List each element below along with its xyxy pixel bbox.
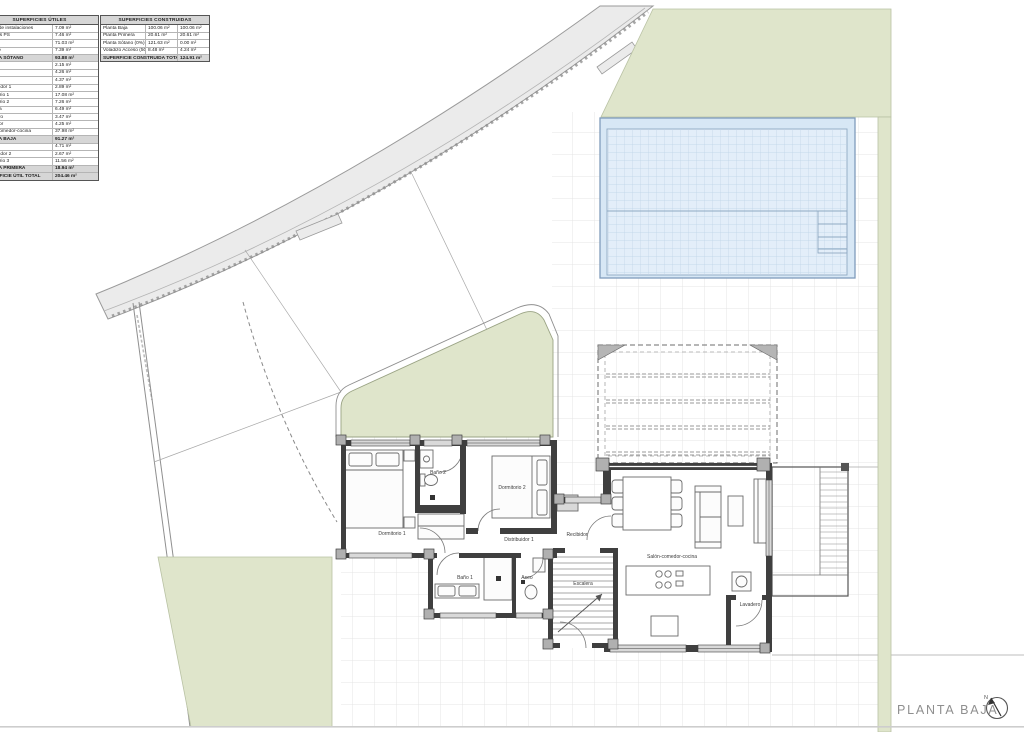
kitchen-island [626, 566, 710, 595]
table-row: Baño 3 4.71 m² [0, 143, 98, 150]
row-value: 6.49 m² [52, 107, 98, 113]
table-header: SUPERFICIES ÚTILES [0, 16, 98, 25]
table-row: SUPERFICIE ÚTIL TOTAL 204.46 m² [0, 172, 98, 179]
row-label: PLANTA BAJA [0, 136, 52, 142]
garden-east-strip [878, 117, 891, 732]
row-label: Escalera [0, 107, 52, 113]
row-value: 7.26 m² [52, 99, 98, 105]
table-row: Trastero 7.39 m² [0, 47, 98, 54]
row-value-built: 8.48 m² [145, 48, 177, 54]
row-label: Distribuidor 1 [0, 85, 52, 91]
wardrobe [418, 514, 464, 539]
row-value: 4.26 m² [52, 70, 98, 76]
table-row: Lavadero 3.47 m² [0, 113, 98, 120]
plan-title: PLANTA BAJA [897, 703, 999, 717]
room-label-aseo: Aseo [521, 575, 533, 581]
row-value: 2.15 m² [52, 62, 98, 68]
table-row: Dormitorio 3 11.56 m² [0, 157, 98, 164]
table-total-row: SUPERFICIE CONSTRUIDA TOTAL 124.91 m² [101, 54, 209, 61]
row-label: Trastero [0, 48, 52, 54]
row-label: Aseo [0, 62, 52, 68]
row-label: Planta Primera [101, 33, 145, 39]
garden-north-east [601, 9, 891, 117]
row-value: 4.25 m² [52, 121, 98, 127]
table-header: SUPERFICIES CONSTRUIDAS [101, 16, 209, 25]
row-label: Baño 3 [0, 144, 52, 150]
washing-machine [732, 572, 751, 591]
table-row: Bodega 71.03 m² [0, 39, 98, 46]
table-row: Escalera 6.49 m² [0, 106, 98, 113]
table-row: Dormitorio 1 17.08 m² [0, 91, 98, 98]
row-value: 3.47 m² [52, 114, 98, 120]
table-row: Cuarto de instalaciones 7.09 m² [0, 25, 98, 31]
row-value: 17.08 m² [52, 92, 98, 98]
tv-sideboard [754, 479, 767, 543]
table-rows: Planta Baja 100.06 m² 100.06 m² Planta P… [101, 25, 209, 54]
row-label: Bodega [0, 40, 52, 46]
row-value: 93.88 m² [52, 55, 98, 61]
garden-south-west [158, 557, 332, 727]
row-value: 2.89 m² [52, 85, 98, 91]
table-row: Recibidor 4.25 m² [0, 120, 98, 127]
row-value-built: 20.61 m² [145, 33, 177, 39]
row-value: 2.67 m² [52, 151, 98, 157]
dining-table [612, 477, 682, 530]
table-row: Baño 1 4.26 m² [0, 69, 98, 76]
row-value-computed: 4.24 m² [177, 48, 209, 54]
table-row: PLANTA SÓTANO 93.88 m² [0, 54, 98, 61]
row-value-built: 121.63 m² [145, 40, 177, 46]
row-label: Baño 1 [0, 70, 52, 76]
total-value: 124.91 m² [177, 55, 209, 61]
table-superficies-construidas: SUPERFICIES CONSTRUIDAS Planta Baja 100.… [100, 15, 210, 62]
row-label: Cuarto de instalaciones [0, 25, 52, 31]
row-label: Salón-comedor-cocina [0, 129, 52, 135]
row-label: PLANTA SÓTANO [0, 55, 52, 61]
table-row: PLANTA BAJA 91.27 m² [0, 135, 98, 142]
table-row: Salón-comedor-cocina 37.98 m² [0, 128, 98, 135]
row-label: Recibidor [0, 121, 52, 127]
table-row: Distribuidor 2 2.67 m² [0, 150, 98, 157]
row-value: 7.09 m² [52, 25, 98, 31]
table-row: Planta Sótano (0%) 121.63 m² 0.00 m² [101, 39, 209, 46]
row-value-computed: 20.61 m² [177, 33, 209, 39]
row-label: PLANTA PRIMERA [0, 166, 52, 172]
driveway-dashed-path [243, 302, 337, 522]
row-value-built: 100.06 m² [145, 25, 177, 31]
row-label: SUPERFICIE ÚTIL TOTAL [0, 173, 52, 179]
table-row: Baño 2 4.37 m² [0, 76, 98, 83]
table-row: PLANTA PRIMERA 18.94 m² [0, 165, 98, 172]
sofa [695, 486, 721, 548]
row-label: Lavadero [0, 114, 52, 120]
row-label: Baño 2 [0, 77, 52, 83]
row-label: Voladizo Acceso (50%) [101, 48, 145, 54]
table-row: Calderas PS 7.46 m² [0, 32, 98, 39]
room-label-recibidor: Recibidor [566, 532, 587, 538]
row-value: 4.71 m² [52, 144, 98, 150]
room-label-lavadero: Lavadero [740, 602, 761, 608]
table-row: Distribuidor 1 2.89 m² [0, 84, 98, 91]
table-row: Aseo 2.15 m² [0, 61, 98, 68]
row-value: 4.37 m² [52, 77, 98, 83]
floorplan-sheet: Dormitorio 1 Baño 2 Dormitorio 2 Distrib… [0, 0, 1024, 732]
table-row: Dormitorio 2 7.26 m² [0, 98, 98, 105]
room-label-banio-1: Baño 1 [457, 575, 473, 581]
row-label: Dormitorio 1 [0, 92, 52, 98]
room-label-dormitorio-2: Dormitorio 2 [498, 485, 525, 491]
table-superficies-utiles: SUPERFICIES ÚTILES Cuarto de instalacion… [0, 15, 99, 181]
room-label-banio-2: Baño 2 [430, 470, 446, 476]
pool [600, 118, 855, 278]
row-value: 7.39 m² [52, 48, 98, 54]
row-label: Dormitorio 3 [0, 158, 52, 164]
table-row: Voladizo Acceso (50%) 8.48 m² 4.24 m² [101, 47, 209, 54]
row-value: 204.46 m² [52, 173, 98, 179]
room-label-distribuidor-1: Distribuidor 1 [504, 537, 534, 543]
row-value: 91.27 m² [52, 136, 98, 142]
table-row: Planta Baja 100.06 m² 100.06 m² [101, 25, 209, 31]
table-rows: Cuarto de instalaciones 7.09 m² Calderas… [0, 25, 98, 179]
sheet-border-bottom [0, 726, 1024, 728]
row-label: Planta Baja [101, 25, 145, 31]
row-value: 11.56 m² [52, 158, 98, 164]
room-label-escalera: Escalera [573, 581, 593, 587]
row-label: Dormitorio 2 [0, 99, 52, 105]
room-label-salon: Salón-comedor-cocina [647, 554, 697, 560]
row-value: 71.03 m² [52, 40, 98, 46]
table-row: Planta Primera 20.61 m² 20.61 m² [101, 32, 209, 39]
row-value: 7.46 m² [52, 33, 98, 39]
row-label: Planta Sótano (0%) [101, 40, 145, 46]
row-label: Calderas PS [0, 33, 52, 39]
row-value: 18.94 m² [52, 166, 98, 172]
svg-text:N: N [984, 695, 988, 701]
bench-box [651, 616, 678, 636]
coffee-table [728, 496, 743, 526]
room-label-dormitorio-1: Dormitorio 1 [378, 531, 405, 537]
row-label: Distribuidor 2 [0, 151, 52, 157]
row-value-computed: 100.06 m² [177, 25, 209, 31]
row-value-computed: 0.00 m² [177, 40, 209, 46]
total-label: SUPERFICIE CONSTRUIDA TOTAL [101, 55, 177, 61]
site-plan-drawing: Dormitorio 1 Baño 2 Dormitorio 2 Distrib… [0, 0, 1024, 732]
row-value: 37.98 m² [52, 129, 98, 135]
